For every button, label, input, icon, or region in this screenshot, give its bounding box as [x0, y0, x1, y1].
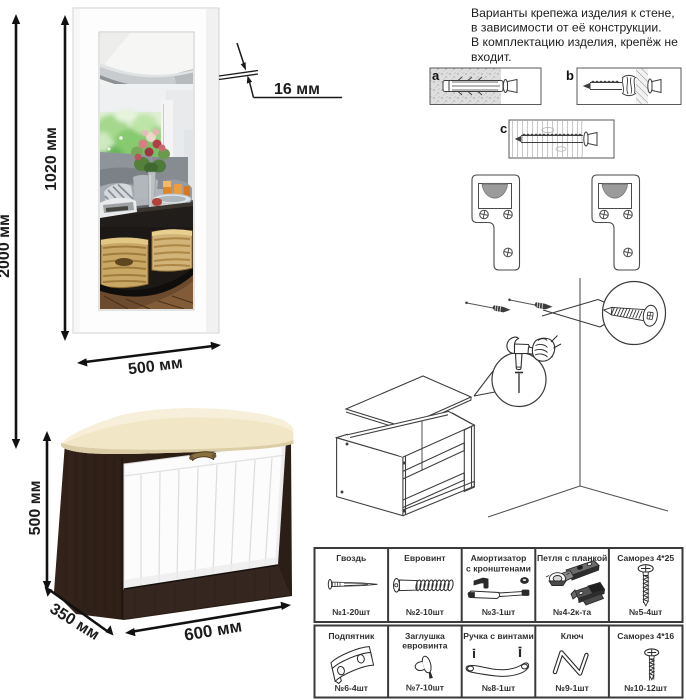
- svg-text:с кронштенами: с кронштенами: [466, 564, 531, 574]
- svg-text:№1-20шт: №1-20шт: [332, 607, 370, 617]
- svg-text:Ручка с винтами: Ручка с винтами: [463, 631, 534, 641]
- svg-text:№2-10шт: №2-10шт: [406, 607, 444, 617]
- svg-text:b: b: [566, 68, 574, 83]
- svg-text:№7-10шт: №7-10шт: [406, 683, 444, 693]
- svg-text:в зависимости от её конструкци: в зависимости от её конструкции.: [471, 21, 662, 35]
- svg-text:Амортизатор: Амортизатор: [471, 553, 527, 563]
- svg-text:16 мм: 16 мм: [274, 81, 320, 98]
- svg-text:№4-2к-та: №4-2к-та: [553, 607, 591, 617]
- svg-text:Петля с планкой: Петля с планкой: [537, 553, 607, 563]
- svg-text:a: a: [432, 68, 440, 83]
- svg-text:№6-4шт: №6-4шт: [335, 683, 368, 693]
- svg-text:Евровинт: Евровинт: [404, 553, 445, 563]
- svg-text:№5-4шт: №5-4шт: [629, 607, 662, 617]
- svg-text:c: c: [500, 121, 507, 136]
- svg-text:Ключ: Ключ: [561, 631, 584, 641]
- svg-text:№9-1шт: №9-1шт: [555, 683, 588, 693]
- svg-text:Саморез 4*25: Саморез 4*25: [617, 553, 674, 563]
- svg-text:1020 мм: 1020 мм: [43, 127, 60, 191]
- svg-text:2000 мм: 2000 мм: [0, 214, 13, 278]
- svg-text:№3-1шт: №3-1шт: [482, 607, 515, 617]
- svg-text:Варианты крепежа изделия к сте: Варианты крепежа изделия к стене,: [471, 6, 675, 20]
- svg-text:№10-12шт: №10-12шт: [624, 683, 667, 693]
- svg-text:Заглушка: Заглушка: [405, 631, 445, 641]
- svg-text:входит.: входит.: [471, 50, 511, 64]
- svg-text:500 мм: 500 мм: [27, 481, 44, 536]
- svg-text:№8-1шт: №8-1шт: [482, 683, 515, 693]
- svg-text:Гвоздь: Гвоздь: [336, 553, 366, 563]
- svg-text:В комплектацию изделия, крепёж: В комплектацию изделия, крепёж не: [471, 35, 678, 49]
- svg-text:евровинта: евровинта: [402, 641, 448, 651]
- svg-text:Подпятник: Подпятник: [328, 631, 375, 641]
- svg-text:Саморез 4*16: Саморез 4*16: [617, 631, 674, 641]
